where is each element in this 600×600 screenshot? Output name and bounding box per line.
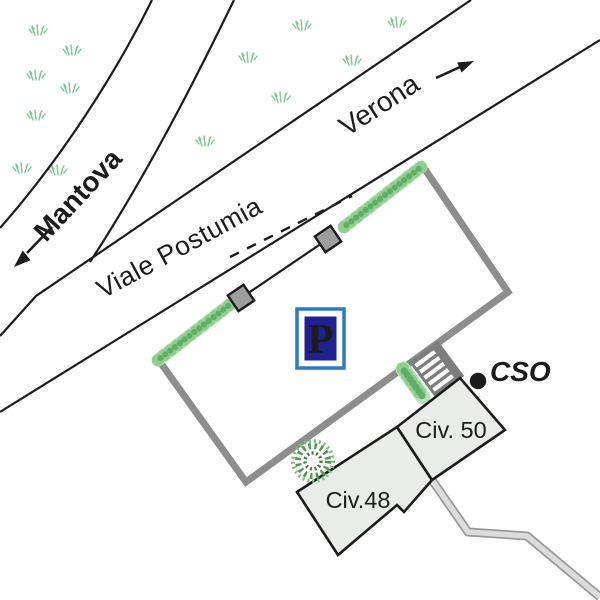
parking-sign-letter: P [308,317,334,363]
road-north-edge [0,0,471,336]
grass-tufts [13,17,406,175]
cso-label: CSO [490,356,551,387]
hedge-row-southwest [158,303,232,360]
sketch-map-svg: P Viale Postumia Mantova Verona Civ. 50 … [0,0,600,600]
building-label-civ50: Civ. 50 [415,417,486,443]
hedge-rows [158,167,421,360]
parking-sign: P [297,309,344,368]
direction-label-mantova: Mantova [28,143,128,248]
map-canvas: P Viale Postumia Mantova Verona Civ. 50 … [0,0,600,600]
walkway-path [432,480,600,597]
gate-line [241,239,328,298]
building-label-civ48: Civ.48 [326,487,391,513]
direction-label-verona: Verona [333,67,425,142]
verona-arrow [436,61,474,78]
gate-post-upper [315,226,341,252]
cso-marker-dot [470,373,486,389]
